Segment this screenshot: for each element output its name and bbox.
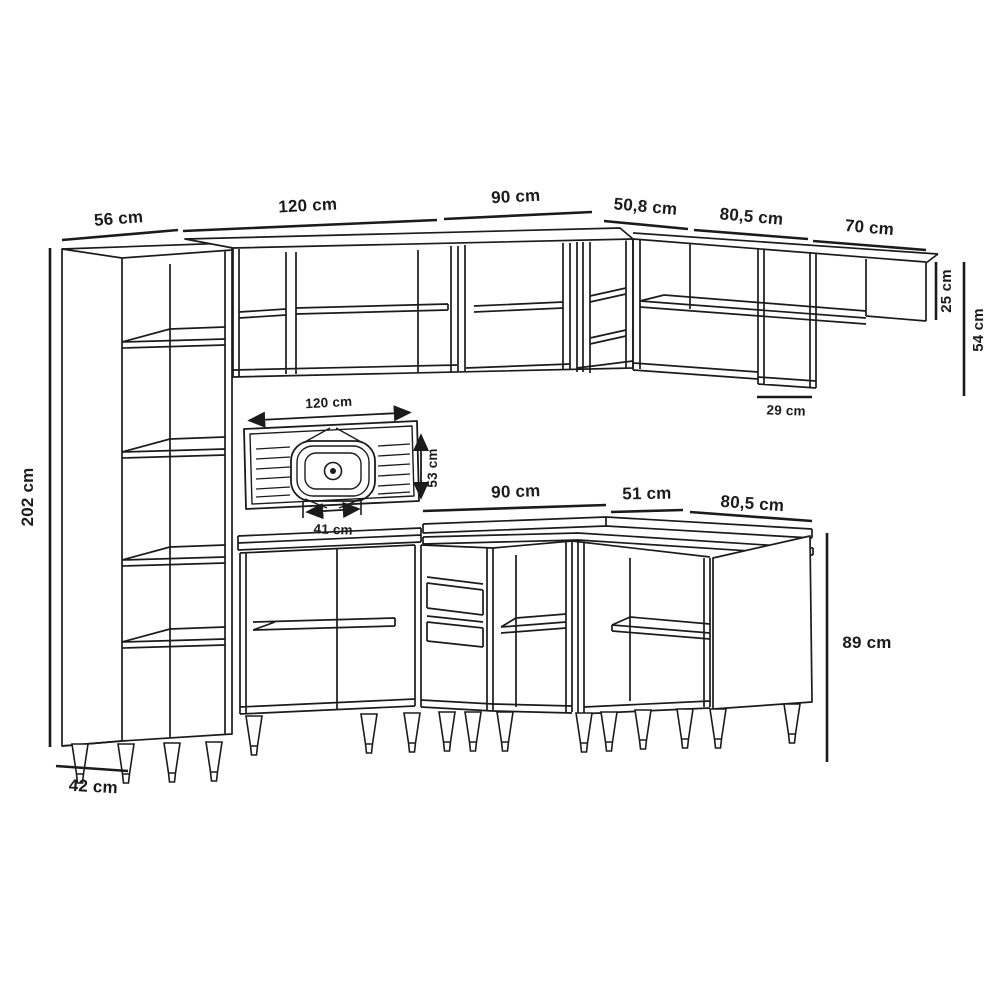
dim-label-sink-top-depth: 53 cm — [425, 448, 440, 487]
kitchen-dimension-diagram: 56 cm 120 cm 90 cm 50,8 cm 80,5 cm 70 cm… — [0, 0, 1000, 1000]
dim-label-base-height: 89 cm — [842, 633, 891, 652]
tall-cabinet-outline — [62, 243, 232, 746]
diagram-drawing: 56 cm 120 cm 90 cm 50,8 cm 80,5 cm 70 cm… — [0, 0, 1000, 1000]
dim-label-sink-top-width: 120 cm — [305, 394, 353, 411]
dim-label-base-c-width: 80,5 cm — [720, 492, 785, 515]
dim-label-wall-shelf-height: 25 cm — [938, 269, 955, 313]
dim-label-wall-shelf-width: 70 cm — [844, 216, 895, 239]
drawer-box-bottom — [427, 616, 483, 647]
tall-cabinet — [62, 243, 232, 746]
wall-shelf-70-box — [866, 259, 926, 321]
dim-label-wall-depth: 29 cm — [766, 402, 806, 418]
dim-label-tall-width: 56 cm — [93, 207, 144, 230]
drawer-box-top — [427, 577, 483, 615]
dim-label-tall-height: 202 cm — [18, 468, 37, 527]
base-sink-shelf — [253, 618, 395, 630]
dim-label-base-b-width: 51 cm — [622, 484, 672, 504]
wall-right-shelf — [640, 295, 866, 324]
wall-left-outline — [185, 228, 633, 377]
dim-label-sink-bowl-width: 41 cm — [313, 521, 353, 537]
dim-label-wall-b-width: 90 cm — [491, 186, 541, 208]
base-corner-shelf — [501, 614, 566, 633]
dim-label-wall-c-width: 80,5 cm — [719, 204, 784, 228]
base-right-shelf — [612, 617, 710, 639]
dim-label-wall-a-width: 120 cm — [278, 194, 338, 216]
dimension-arrow-bowl-width — [307, 509, 359, 512]
wall-cabinets-right-run — [633, 233, 938, 388]
dim-label-wall-corner-width: 50,8 cm — [613, 194, 678, 218]
dim-label-wall-height: 54 cm — [970, 308, 987, 352]
wall-cabinets-left-run — [185, 228, 633, 377]
base-right-side-panel — [713, 536, 812, 709]
base-cabinet-right — [572, 536, 812, 714]
dim-label-base-a-width: 90 cm — [491, 481, 541, 502]
dimension-arrow-sink-width — [249, 413, 410, 421]
base-drawer-unit — [421, 545, 493, 711]
dim-label-tall-depth: 42 cm — [68, 776, 118, 798]
sink-drain-hole — [330, 468, 336, 474]
sink-top-view — [244, 421, 419, 509]
base-cabinet-corner — [493, 541, 572, 713]
base-cabinet-sink — [240, 545, 421, 714]
